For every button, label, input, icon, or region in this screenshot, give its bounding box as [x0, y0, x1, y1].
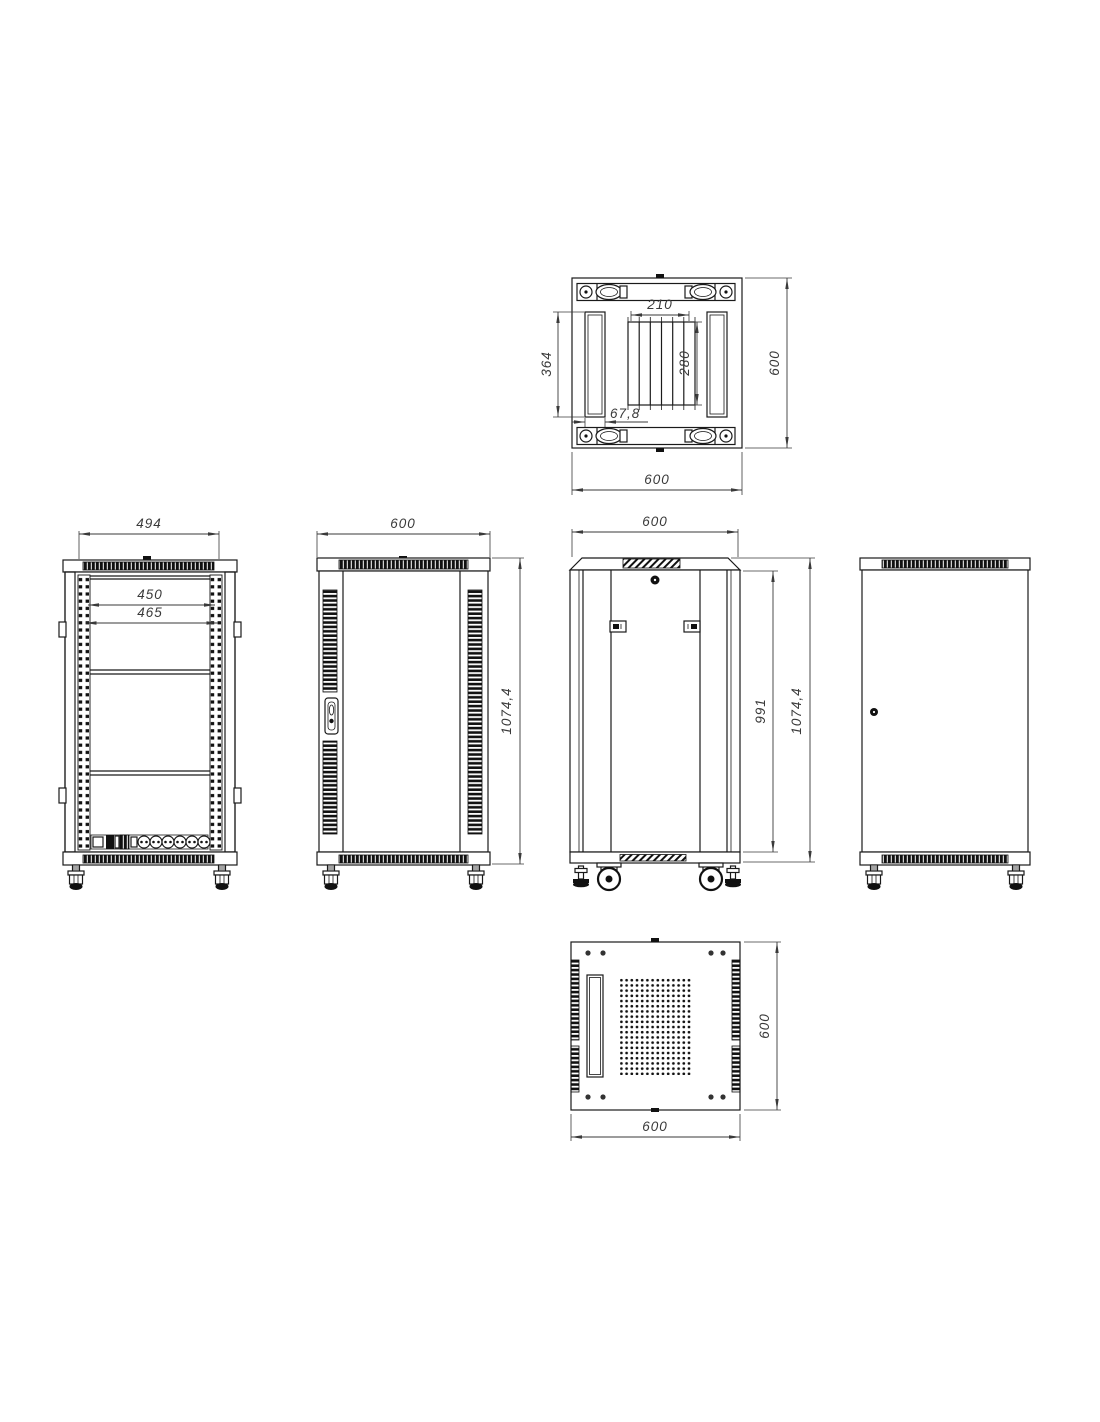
leveling-foot-icon [573, 866, 589, 887]
top-vent-strip [882, 560, 1008, 568]
foot-caster-icon [214, 865, 230, 890]
dim-front-frame-width: 494 [79, 516, 219, 559]
edge-vent-strip [732, 960, 740, 1040]
bottom-vent-strip [339, 855, 468, 863]
caster-wheel-icon [597, 863, 621, 890]
foot-caster-icon [866, 865, 882, 890]
left-rack-rail [78, 575, 90, 850]
front-open-view: 494 450 465 [59, 516, 241, 890]
caster-bar-bottom [577, 428, 735, 445]
rear-view: 600 991 1074,4 [570, 514, 815, 890]
side-bracket [59, 788, 66, 803]
drawing-canvas: 210 280 364 67,8 600 [0, 0, 1100, 1422]
edge-vent-strip [732, 1046, 740, 1092]
dim-label: 1074,4 [789, 687, 804, 734]
dim-bottom-width: 600 [571, 1114, 740, 1141]
side-panel [862, 570, 1028, 852]
foot-caster-icon [1008, 865, 1024, 890]
rack-technical-drawing: 210 280 364 67,8 600 [0, 0, 1100, 1422]
top-hatch-vent [623, 559, 680, 568]
dim-top-depth: 600 [745, 278, 792, 448]
bottom-alignment-mark [651, 1108, 659, 1112]
dim-label: 600 [644, 472, 670, 487]
dim-rear-door-height: 991 [743, 571, 778, 852]
dim-bottom-depth: 600 [744, 942, 781, 1110]
dim-label: 1074,4 [499, 687, 514, 734]
dim-label: 67,8 [610, 406, 640, 421]
bottom-view: 600 600 [571, 938, 781, 1141]
door-vent-left-lower [323, 741, 337, 834]
caster-top-icon [596, 429, 622, 444]
leveling-foot-icon [725, 866, 741, 887]
caster-top-icon [690, 285, 716, 300]
door-vent-right [468, 590, 482, 834]
edge-vent-strip [571, 960, 579, 1040]
front-door-view: 600 1074,4 [317, 516, 524, 890]
top-alignment-mark [651, 938, 659, 942]
dim-label: 600 [390, 516, 416, 531]
foot-caster-icon [323, 865, 339, 890]
dim-label: 210 [646, 297, 673, 312]
top-alignment-mark [656, 274, 664, 278]
foot-caster-icon [68, 865, 84, 890]
pdu-switch [93, 837, 103, 847]
top-view: 210 280 364 67,8 600 [539, 274, 792, 495]
perforated-mesh [620, 977, 692, 1075]
dim-label: 364 [539, 351, 554, 377]
top-vent-strip [339, 560, 468, 569]
dim-door-width: 600 [317, 516, 490, 557]
dim-label: 600 [767, 350, 782, 376]
bottom-alignment-mark [656, 448, 664, 452]
bottom-hatch-vent [620, 855, 686, 862]
rear-latch-right [684, 621, 700, 632]
right-rack-rail [210, 575, 222, 850]
door-vent-left-upper [323, 590, 337, 692]
side-bracket [59, 622, 66, 637]
dim-door-height: 1074,4 [492, 558, 524, 864]
dim-label: 600 [642, 514, 668, 529]
rear-latch-left [610, 621, 626, 632]
dim-label: 465 [137, 605, 163, 620]
door-handle [325, 698, 338, 734]
dim-top-width: 600 [572, 452, 742, 495]
dim-label: 450 [137, 587, 163, 602]
dim-label: 991 [753, 698, 768, 724]
top-vent-strip [83, 562, 214, 570]
edge-vent-strip [571, 1046, 579, 1092]
caster-top-icon [690, 429, 716, 444]
handle-lock-icon [329, 719, 333, 723]
side-bracket [234, 788, 241, 803]
side-view [860, 558, 1030, 890]
bottom-vent-strip [83, 855, 214, 863]
caster-wheel-icon [699, 863, 723, 890]
dim-rear-width: 600 [572, 514, 738, 557]
dim-label: 600 [757, 1013, 772, 1039]
dim-label: 494 [136, 516, 162, 531]
dim-label: 280 [677, 350, 692, 377]
side-bracket [234, 622, 241, 637]
caster-top-icon [596, 285, 622, 300]
dim-label: 600 [642, 1119, 668, 1134]
bottom-vent-strip [882, 855, 1008, 863]
foot-caster-icon [468, 865, 484, 890]
